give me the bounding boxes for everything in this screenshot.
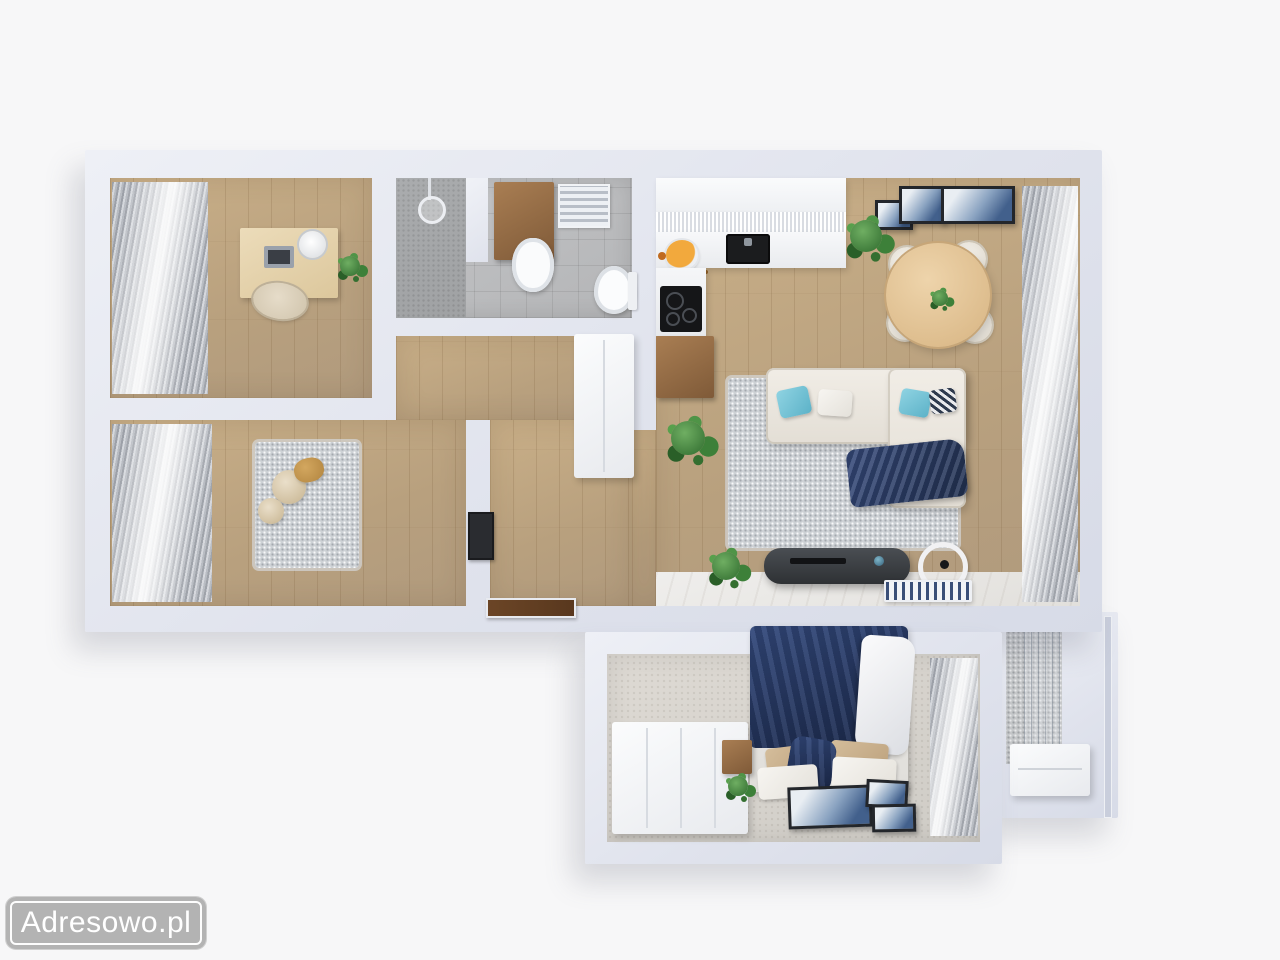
cooktop	[660, 286, 702, 332]
kitchen-hood-cabinet	[656, 178, 846, 212]
loose-fruit-dots	[658, 252, 666, 260]
office-window-curtains	[112, 182, 208, 394]
shower-head	[418, 196, 446, 224]
floor-plan-scene: Adresowo.pl	[0, 0, 1280, 960]
wall-art-frame-2	[899, 186, 945, 224]
watermark-text: Adresowo.pl	[21, 906, 192, 940]
decor-ball	[874, 556, 884, 566]
living-plant-2	[712, 552, 740, 580]
bedside-plant	[728, 776, 748, 796]
toilet-tank	[628, 272, 637, 310]
towel-radiator	[558, 184, 610, 228]
living-radiator	[884, 580, 972, 602]
hallway-wardrobe-seam	[603, 340, 605, 472]
bed-white-duvet-fold	[854, 634, 916, 755]
navy-throw-blanket	[845, 438, 968, 508]
plush-toy-2	[258, 498, 284, 524]
dining-plant	[850, 220, 882, 252]
cooktop-burner-2	[682, 308, 697, 323]
hoop-lamp-bulb	[940, 560, 949, 569]
tv-panel	[790, 558, 846, 564]
kitchen-upper-cabinets	[656, 212, 846, 232]
tv-console	[764, 548, 910, 584]
entrance-door	[486, 598, 576, 618]
hall-living-opening-floor	[632, 430, 656, 606]
balcony-glass-railing	[1024, 622, 1060, 762]
sofa-pillow-striped	[928, 387, 957, 414]
bedroom-wardrobe-seams	[646, 728, 648, 828]
living-window-curtains	[1022, 186, 1078, 602]
balcony-storage-box	[1010, 744, 1090, 796]
vanity-sink	[512, 238, 554, 292]
watermark-badge: Adresowo.pl	[6, 897, 206, 949]
bedroom-window-curtains	[930, 658, 978, 836]
floor-art-frame-3	[872, 804, 916, 833]
cooktop-burner-1	[666, 292, 684, 310]
sink-faucet	[744, 238, 752, 246]
kids-window-curtains	[112, 424, 212, 602]
balcony-box-lid-seam	[1018, 768, 1082, 770]
desk-lamp	[299, 231, 326, 258]
floor-art-frame-1	[787, 785, 872, 830]
balcony-railing-edge	[1104, 616, 1112, 818]
kitchen-wood-cabinet	[656, 336, 714, 398]
shower-partition-wall	[466, 178, 488, 262]
bedside-table	[722, 740, 752, 774]
wall-art-frame-3	[941, 186, 1015, 224]
kids-wall-tv	[468, 512, 494, 560]
sofa-pillow-white	[817, 389, 853, 417]
cooktop-burner-3	[666, 312, 680, 326]
bedroom-wardrobe	[612, 722, 748, 834]
office-plant	[340, 256, 360, 276]
sofa-pillow-teal-2	[898, 388, 932, 419]
fruit-bowl	[666, 240, 698, 270]
table-centerpiece	[932, 290, 948, 306]
laptop-screen	[268, 250, 290, 264]
living-plant-1	[671, 421, 705, 455]
